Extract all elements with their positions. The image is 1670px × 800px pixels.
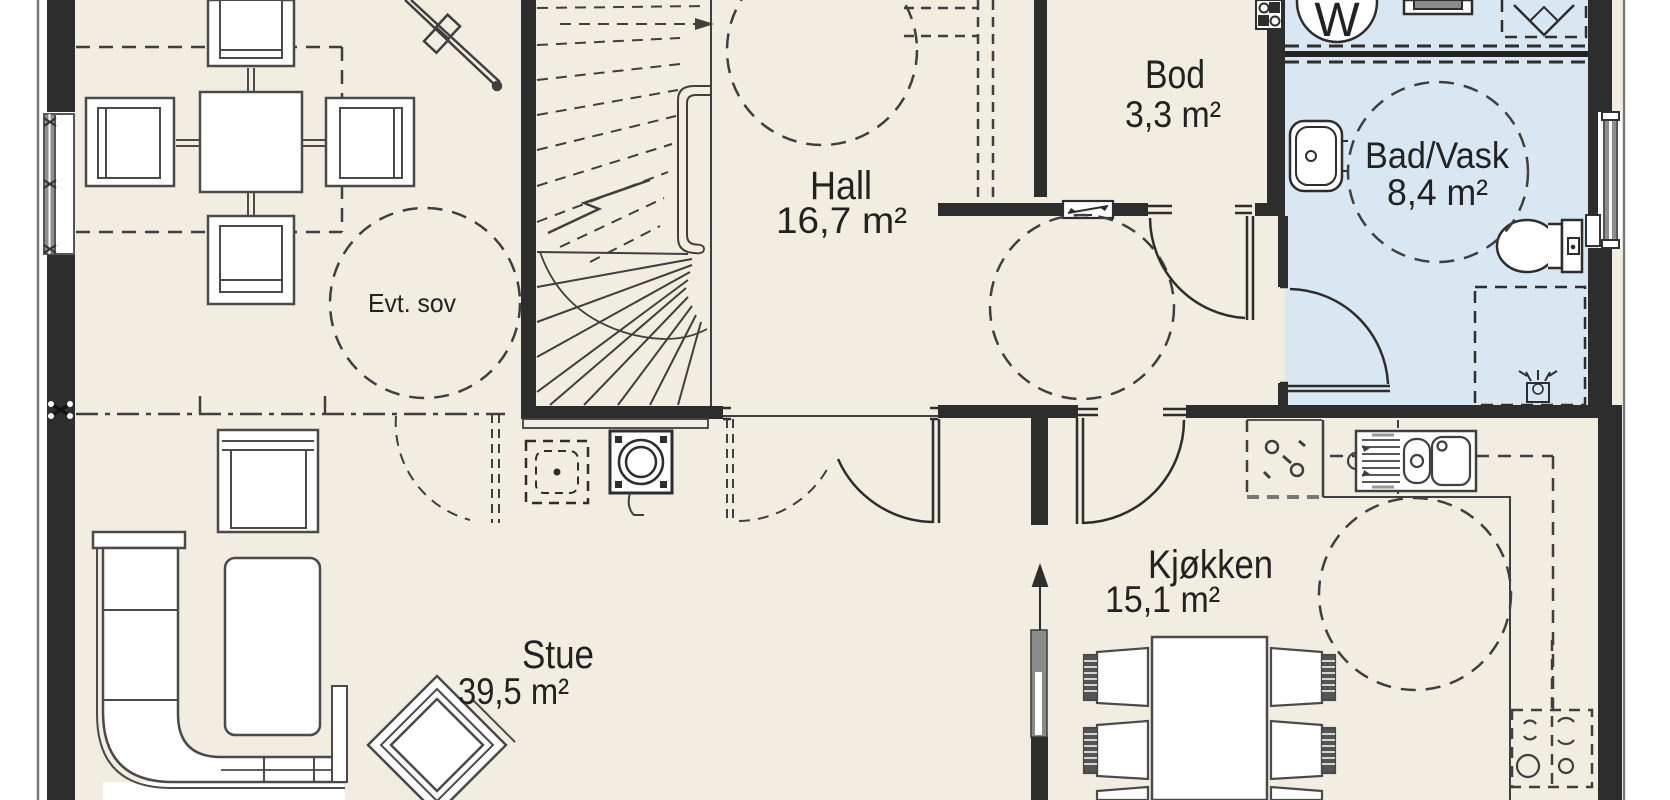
svg-text:15,1 m²: 15,1 m²	[1105, 579, 1220, 620]
svg-text:W: W	[1314, 0, 1360, 47]
svg-text:3,3 m²: 3,3 m²	[1125, 94, 1221, 135]
svg-text:Bod: Bod	[1145, 53, 1205, 97]
svg-text:Evt. sov: Evt. sov	[368, 288, 456, 318]
svg-text:Bad/Vask: Bad/Vask	[1365, 135, 1509, 176]
svg-text:39,5 m²: 39,5 m²	[458, 671, 569, 712]
svg-text:8,4 m²: 8,4 m²	[1387, 172, 1488, 213]
svg-text:16,7 m²: 16,7 m²	[776, 200, 907, 241]
